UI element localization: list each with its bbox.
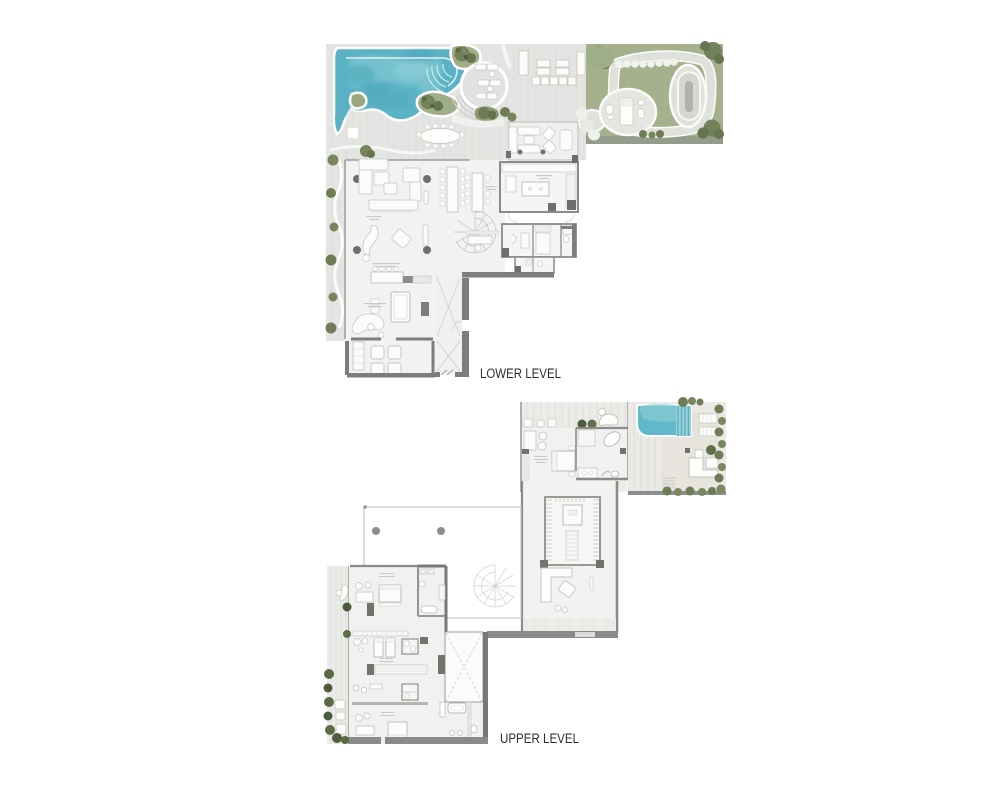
svg-text:UPPER LEVEL: UPPER LEVEL [500, 731, 579, 746]
svg-text:LOWER LEVEL: LOWER LEVEL [480, 366, 561, 381]
